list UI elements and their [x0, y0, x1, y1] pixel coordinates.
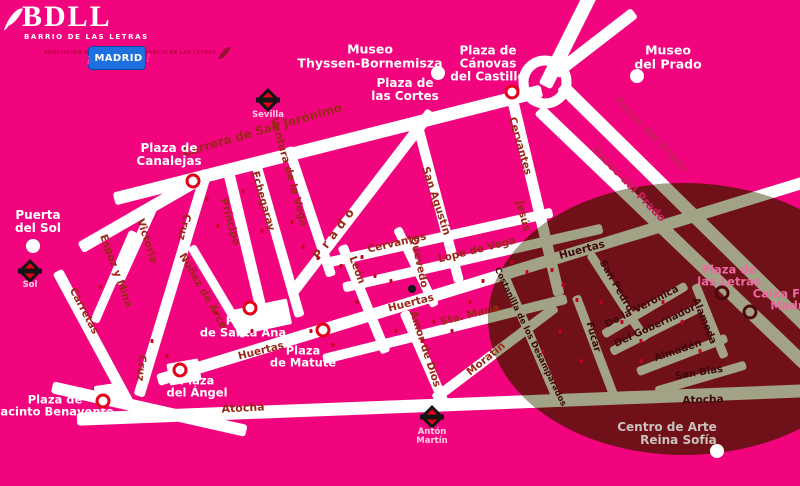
- street-label-lope-de-vega: Lope de Vega: [437, 235, 517, 266]
- shop-marker: [302, 245, 305, 249]
- barrio-letras-map: Carrera de San JerónimoVentura de la Veg…: [0, 0, 800, 486]
- association-line: ASOCIACIÓN DE: [44, 50, 92, 56]
- madrid-badge-close-exclamation: !: [146, 50, 151, 66]
- plaza-ring-marker-plaza-de-santa-ana: [243, 301, 258, 316]
- street-label-carretas: Carretas: [67, 286, 101, 336]
- shop-marker: [640, 339, 643, 343]
- shop-marker: [511, 260, 514, 264]
- plaza-ring-marker-plaza-del-angel: [173, 363, 188, 378]
- street-label-jesus: Jesús: [513, 200, 532, 233]
- street-label-ventura-de-la-vega: Ventura de la Vega: [268, 116, 311, 227]
- street-label-prado: Prado: [310, 202, 360, 262]
- place-label-line: del Castillo: [450, 70, 525, 83]
- place-label-caixa-forum-madrid: Caixa ForumMadrid: [753, 288, 800, 313]
- place-label-plaza-de-canovas-del-castillo: Plaza deCánovasdel Castillo: [450, 45, 525, 84]
- street-label-cervantes: Cervantes: [506, 116, 534, 177]
- place-label-plaza-del-angel: Plazadel Ángel: [166, 375, 227, 400]
- shop-marker: [151, 339, 154, 343]
- shop-marker: [361, 255, 364, 259]
- place-label-line: de Matute: [270, 357, 336, 369]
- place-label-plaza-de-santa-ana: Plazade Santa Ana: [200, 315, 286, 340]
- bdll-subtitle: BARRIO DE LAS LETRAS: [24, 33, 149, 41]
- street-label-san-blas: San Blas: [674, 364, 723, 382]
- shop-marker: [332, 343, 335, 347]
- street-label-principe: Príncipe: [218, 197, 243, 247]
- street-label-amor-de-dios: Amor de Dios: [407, 309, 443, 388]
- place-label-line: Cánovas: [450, 58, 525, 71]
- shop-marker: [395, 329, 398, 333]
- shop-marker: [206, 197, 209, 201]
- shop-marker: [166, 354, 169, 358]
- poi-dot-museo-del-prado: [630, 69, 644, 83]
- place-label-line: del Sol: [15, 222, 61, 235]
- shop-marker: [99, 285, 102, 289]
- place-label-line: Canalejas: [136, 155, 201, 168]
- street-label-quevedo: Quevedo: [408, 235, 431, 289]
- shop-marker: [559, 329, 562, 333]
- landmark-dot: [408, 285, 416, 293]
- shop-marker: [640, 359, 643, 363]
- metro-label-line: Martín: [416, 437, 447, 446]
- place-label-line: Museo: [634, 44, 701, 58]
- street-label-costanilla-de-los-desamparados: Costanilla de los Desamparados: [492, 266, 568, 408]
- place-label-plaza-de-canalejas: Plaza deCanalejas: [136, 142, 201, 168]
- place-label-line: las Cortes: [371, 90, 439, 103]
- shop-marker: [217, 224, 220, 228]
- street-label-sta-maria: Sta. María: [439, 302, 501, 328]
- plaza-ring-marker-plaza-de-matute: [316, 323, 331, 338]
- street-label-leon: León: [346, 255, 367, 286]
- shop-marker: [340, 264, 343, 268]
- shop-marker: [681, 320, 684, 324]
- street-label-huertas: Huertas: [558, 238, 606, 262]
- shop-marker: [551, 268, 554, 272]
- bdll-logo: BDLL BARRIO DE LAS LETRAS: [8, 2, 149, 41]
- metro-label-sevilla: Sevilla: [252, 111, 284, 120]
- place-label-line: Madrid: [753, 300, 800, 312]
- plaza-ring-marker-plaza-de-canalejas: [186, 174, 201, 189]
- street-label-echegaray: Echegaray: [249, 170, 277, 232]
- place-label-line: las Letras: [697, 276, 760, 288]
- shop-marker: [310, 329, 313, 333]
- plaza-ring-marker-plaza-de-las-cortes: [505, 85, 520, 100]
- feather-icon: [221, 45, 228, 61]
- place-label-museo-del-prado: Museodel Prado: [634, 44, 701, 71]
- place-label-line: Centro de Arte: [617, 421, 717, 434]
- poi-dot-museo-thyssen-bornemisza: [431, 66, 445, 80]
- shop-marker: [251, 329, 254, 333]
- bdll-title: BDLL: [22, 2, 149, 32]
- place-label-line: Plaza de: [136, 142, 201, 155]
- shop-marker: [469, 300, 472, 304]
- street-label-fucar: Fúcar: [583, 321, 602, 354]
- shop-marker: [356, 300, 359, 304]
- street-label-cruz: Cruz: [134, 354, 148, 381]
- street-label-paseo-del-prado: Paseo del Prado: [612, 94, 691, 175]
- shop-marker: [576, 298, 579, 302]
- place-label-line: del Prado: [634, 57, 701, 71]
- plaza-ring-marker-caixa-forum-madrid: [743, 305, 758, 320]
- place-label-centro-de-arte-reina-sofia: Centro de ArteReina Sofía: [617, 421, 717, 447]
- shop-marker: [542, 350, 545, 354]
- plaza-ring-marker-plaza-de-las-letras: [715, 286, 730, 301]
- street-label-san-pedro: San Pedro: [597, 258, 635, 313]
- shop-marker: [562, 283, 565, 287]
- madrid-badge-text: MADRID: [94, 53, 142, 64]
- madrid-badge-open-exclamation: ¡: [86, 50, 91, 66]
- quill-icon: [10, 6, 19, 28]
- shop-marker: [526, 270, 529, 274]
- place-label-line: Puerta: [15, 209, 61, 222]
- shop-marker: [242, 189, 245, 193]
- shop-marker: [374, 274, 377, 278]
- street-label-atocha: Atocha: [221, 400, 265, 415]
- street-label-san-agustin: San Agustín: [419, 165, 452, 236]
- place-label-museo-thyssen-bornemisza: MuseoThyssen-Bornemisza: [297, 43, 442, 70]
- place-label-line: Museo: [297, 43, 442, 57]
- shop-marker: [390, 279, 393, 283]
- shop-marker: [600, 300, 603, 304]
- street-label-moratin: Moratín: [464, 340, 507, 378]
- shop-marker: [662, 300, 665, 304]
- shop-marker: [699, 349, 702, 353]
- shop-marker: [451, 329, 454, 333]
- metro-label-sol: Sol: [23, 281, 38, 290]
- place-label-plaza-de-matute: Plazade Matute: [270, 345, 336, 370]
- poi-dot-puerta-del-sol: [26, 239, 40, 253]
- street-label-espoz-y-mina: Espoz y Mina: [97, 233, 135, 309]
- place-label-puerta-del-sol: Puertadel Sol: [15, 209, 61, 235]
- place-label-line: del Ángel: [166, 387, 227, 399]
- place-label-line: de Santa Ana: [200, 327, 286, 339]
- shop-marker: [215, 311, 218, 315]
- street-label-cruz: Cruz: [175, 213, 193, 242]
- place-label-plaza-de-las-letras: Plaza delas Letras: [697, 264, 760, 289]
- labels-layer: Carrera de San JerónimoVentura de la Veg…: [0, 0, 800, 486]
- metro-label-anton-martin: AntónMartín: [416, 428, 447, 447]
- metro-label-line: Sevilla: [252, 111, 284, 120]
- place-label-line: Reina Sofía: [617, 434, 717, 447]
- street-label-almaden: Almadén: [653, 338, 703, 364]
- shop-marker: [482, 279, 485, 283]
- street-label-paseo-del-prado: Paseo del Prado: [590, 144, 669, 225]
- shop-marker: [317, 256, 320, 260]
- place-label-plaza-de-las-cortes: Plaza delas Cortes: [371, 77, 439, 103]
- poi-dot-centro-de-arte-reina-sofia: [710, 444, 724, 458]
- shop-marker: [291, 220, 294, 224]
- shop-marker: [421, 339, 424, 343]
- street-label-victoria: Victoria: [134, 217, 160, 264]
- shop-marker: [433, 320, 436, 324]
- plaza-ring-marker-plaza-de-jacinto-benavente: [96, 394, 111, 409]
- place-label-line: Jacinto Benavente: [0, 406, 114, 418]
- place-label-line: Plaza de: [371, 77, 439, 90]
- place-label-line: Thyssen-Bornemisza: [297, 56, 442, 70]
- street-label-atocha: Atocha: [682, 393, 724, 406]
- madrid-badge: ¡ MADRID !: [88, 46, 146, 70]
- metro-label-line: Sol: [23, 281, 38, 290]
- shop-marker: [261, 229, 264, 233]
- shop-marker: [621, 320, 624, 324]
- association-line: BARRIO DE LAS LETRAS: [144, 50, 216, 56]
- shop-marker: [580, 359, 583, 363]
